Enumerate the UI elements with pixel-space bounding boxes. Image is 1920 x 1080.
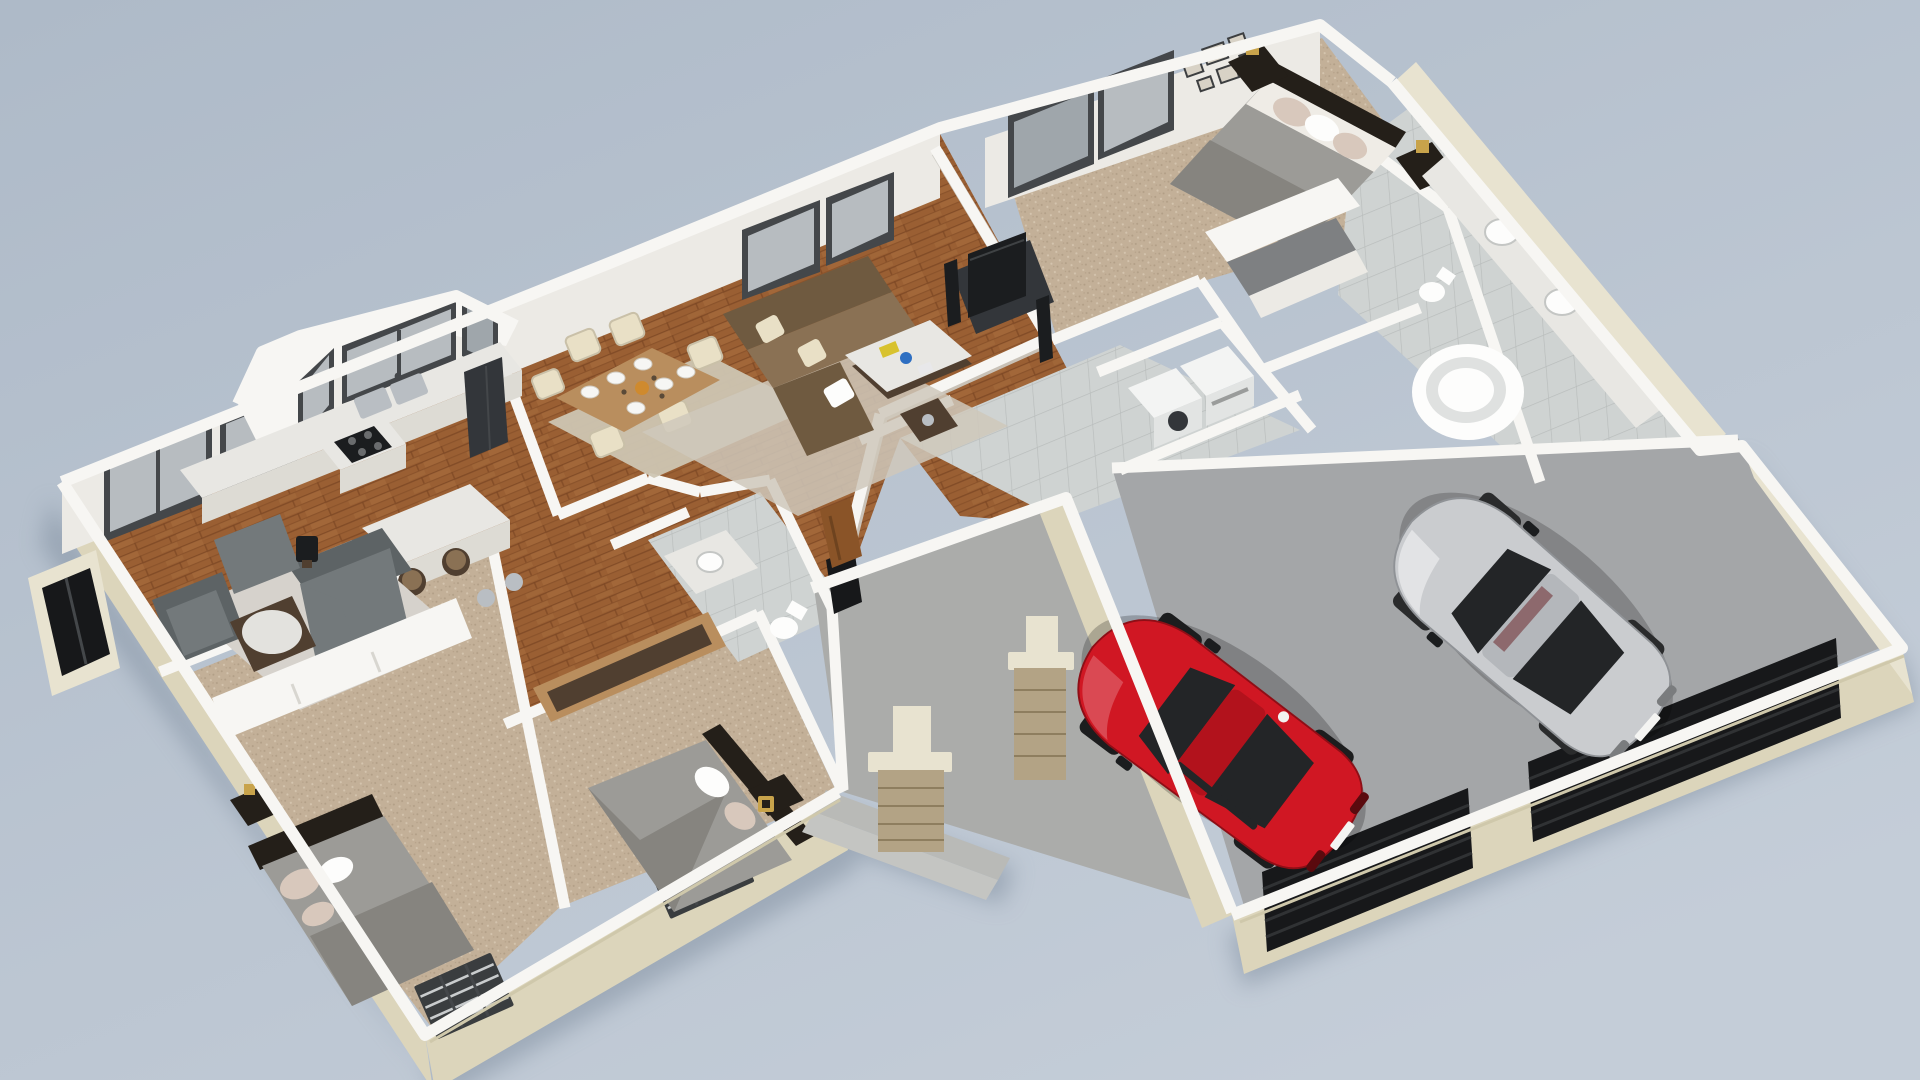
hall-bath-sink [697, 552, 723, 572]
floorplan-render: 3D isometric floor plan rendering of a s… [0, 0, 1920, 1080]
coffee-table-bowl [900, 352, 912, 364]
centerpiece-bowl [635, 381, 649, 395]
bar-stool [442, 548, 470, 576]
soaking-tub [1412, 344, 1524, 440]
refrigerator [464, 357, 508, 458]
pendant-globe [505, 573, 523, 591]
pendant-globe [477, 589, 495, 607]
